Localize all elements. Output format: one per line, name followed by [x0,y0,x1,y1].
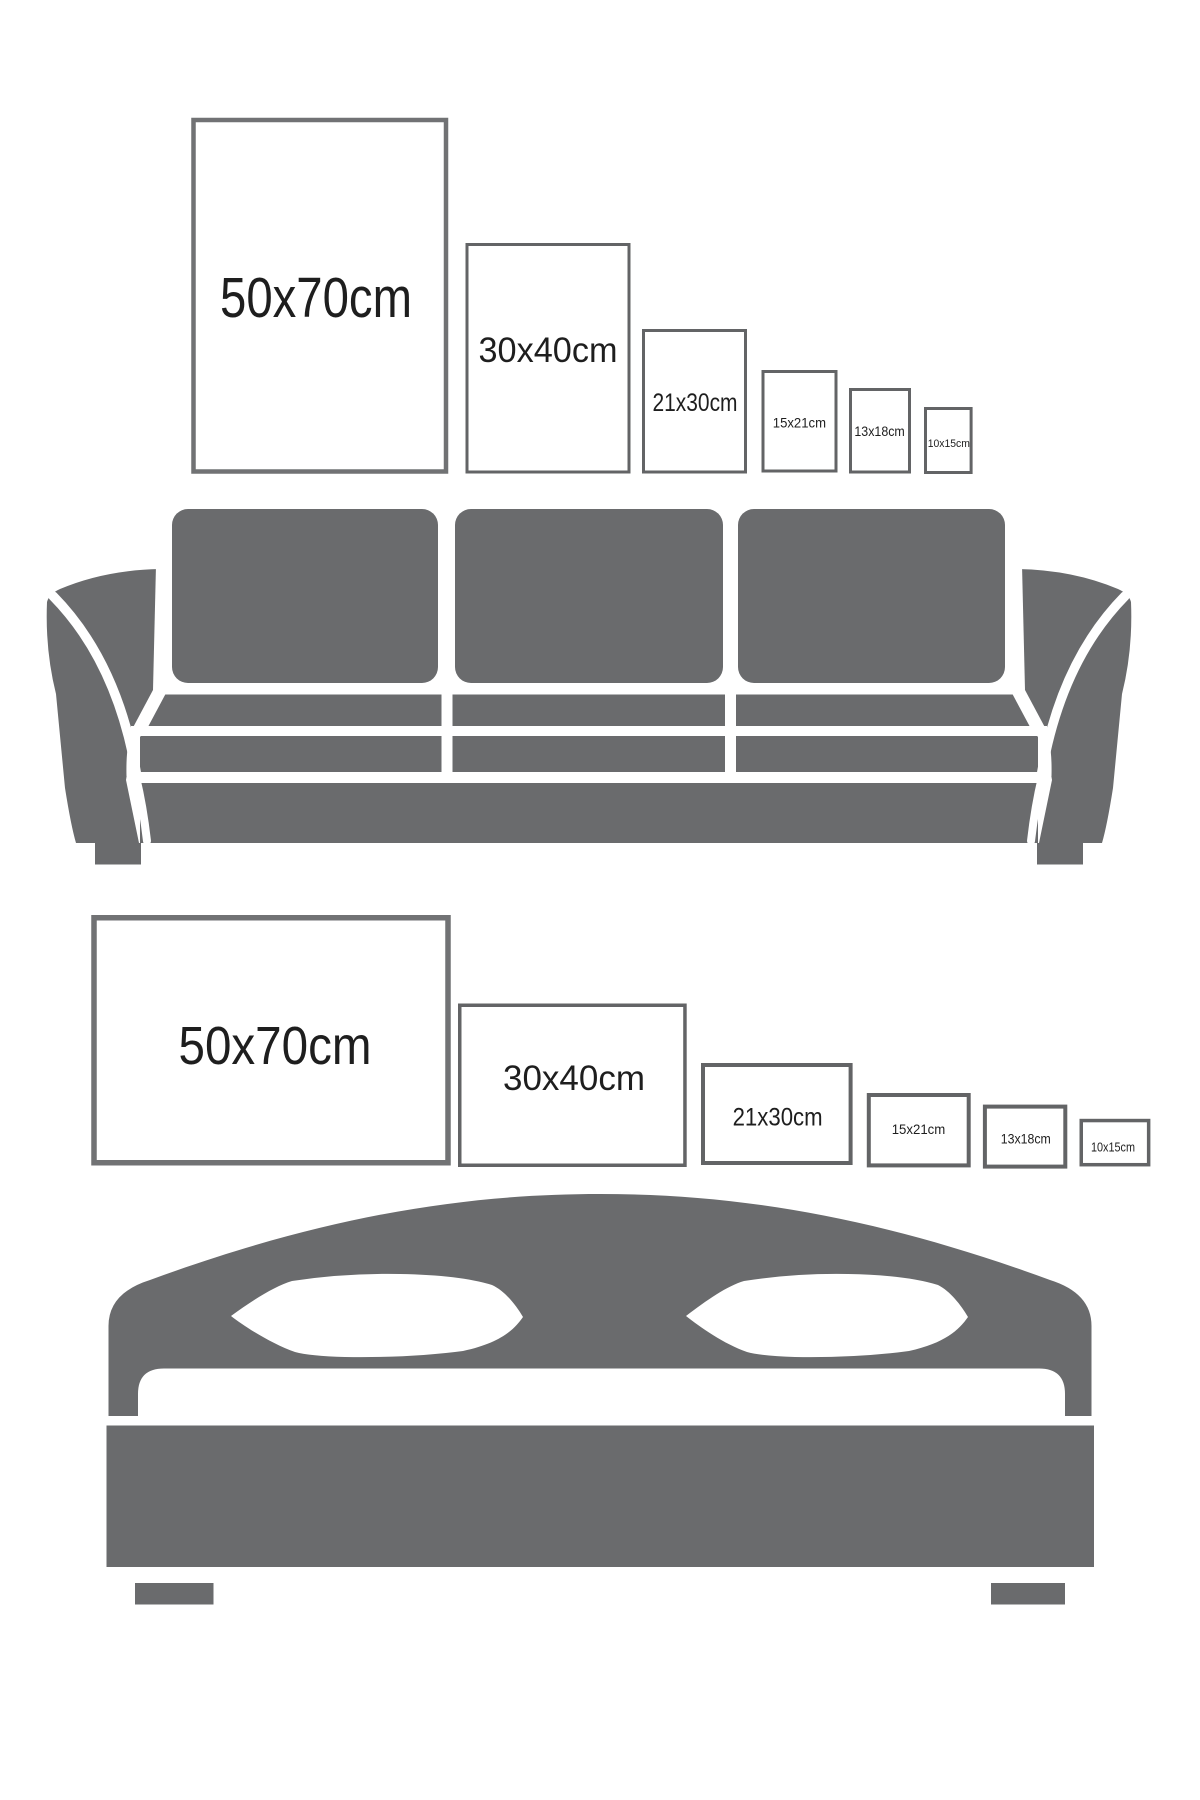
svg-text:21x30cm: 21x30cm [653,389,738,417]
svg-text:13x18cm: 13x18cm [1001,1132,1051,1148]
svg-text:15x21cm: 15x21cm [892,1122,946,1137]
svg-text:21x30cm: 21x30cm [733,1104,823,1132]
svg-text:10x15cm: 10x15cm [1091,1139,1135,1154]
svg-text:30x40cm: 30x40cm [479,330,618,370]
svg-text:50x70cm: 50x70cm [179,1017,372,1076]
svg-text:15x21cm: 15x21cm [773,415,826,430]
svg-text:30x40cm: 30x40cm [503,1058,645,1098]
svg-text:10x15cm: 10x15cm [928,438,970,450]
svg-text:50x70cm: 50x70cm [220,266,412,330]
svg-text:13x18cm: 13x18cm [854,424,904,440]
